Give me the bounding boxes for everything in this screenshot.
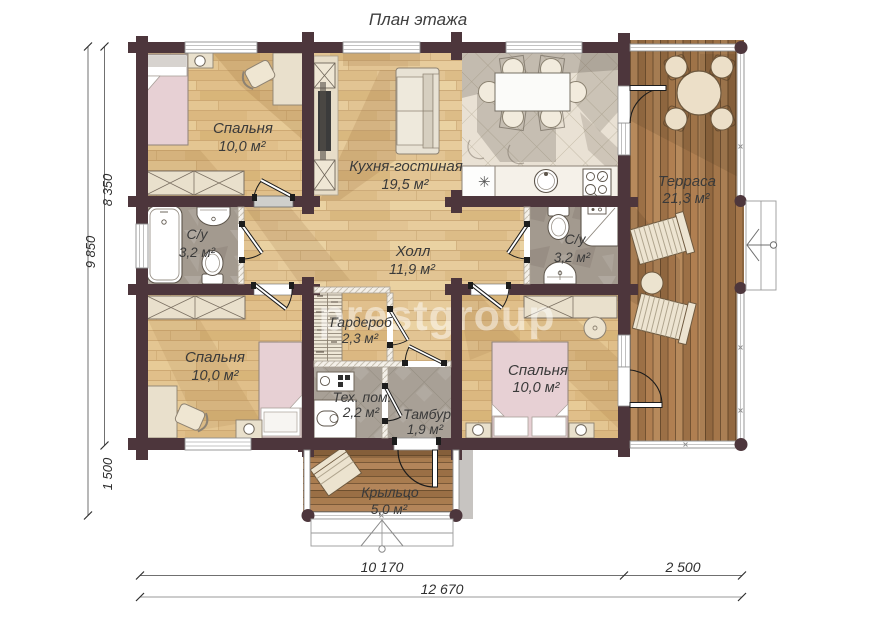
svg-text:С/у: С/у [565, 231, 587, 247]
svg-text:11,9 м²: 11,9 м² [389, 262, 436, 278]
svg-text:21,3 м²: 21,3 м² [661, 191, 710, 207]
svg-text:19,5 м²: 19,5 м² [381, 177, 429, 193]
svg-text:10,0 м²: 10,0 м² [191, 368, 239, 384]
svg-text:Крыльцо: Крыльцо [361, 484, 419, 500]
svg-text:3,2 м²: 3,2 м² [179, 245, 216, 260]
svg-text:Тех. пом.: Тех. пом. [332, 389, 391, 405]
svg-text:1 500: 1 500 [100, 457, 115, 490]
svg-text:2,3 м²: 2,3 м² [341, 331, 379, 346]
svg-text:С/у: С/у [187, 226, 209, 242]
svg-text:Спальня: Спальня [185, 349, 245, 366]
svg-text:5,0 м²: 5,0 м² [371, 502, 408, 517]
svg-text:Холл: Холл [395, 243, 431, 260]
svg-text:Кухня-гостиная: Кухня-гостиная [349, 158, 462, 175]
svg-text:Тамбур: Тамбур [403, 406, 451, 422]
svg-text:Спальня: Спальня [213, 120, 273, 137]
svg-text:2 500: 2 500 [664, 559, 700, 575]
svg-text:Терраса: Терраса [658, 173, 716, 190]
svg-text:9 850: 9 850 [83, 235, 98, 268]
svg-text:8 350: 8 350 [100, 173, 115, 206]
svg-text:1,9 м²: 1,9 м² [407, 422, 444, 437]
svg-text:Спальня: Спальня [508, 362, 568, 379]
svg-text:Гардероб: Гардероб [330, 314, 393, 330]
svg-text:2,2 м²: 2,2 м² [342, 405, 380, 420]
svg-text:10 170: 10 170 [361, 559, 404, 575]
svg-text:12 670: 12 670 [421, 581, 464, 597]
svg-text:План этажа: План этажа [369, 10, 467, 29]
svg-text:✳: ✳ [478, 174, 491, 191]
svg-text:10,0 м²: 10,0 м² [512, 380, 560, 396]
svg-text:10,0 м²: 10,0 м² [218, 139, 266, 155]
svg-text:3,2 м²: 3,2 м² [554, 250, 591, 265]
